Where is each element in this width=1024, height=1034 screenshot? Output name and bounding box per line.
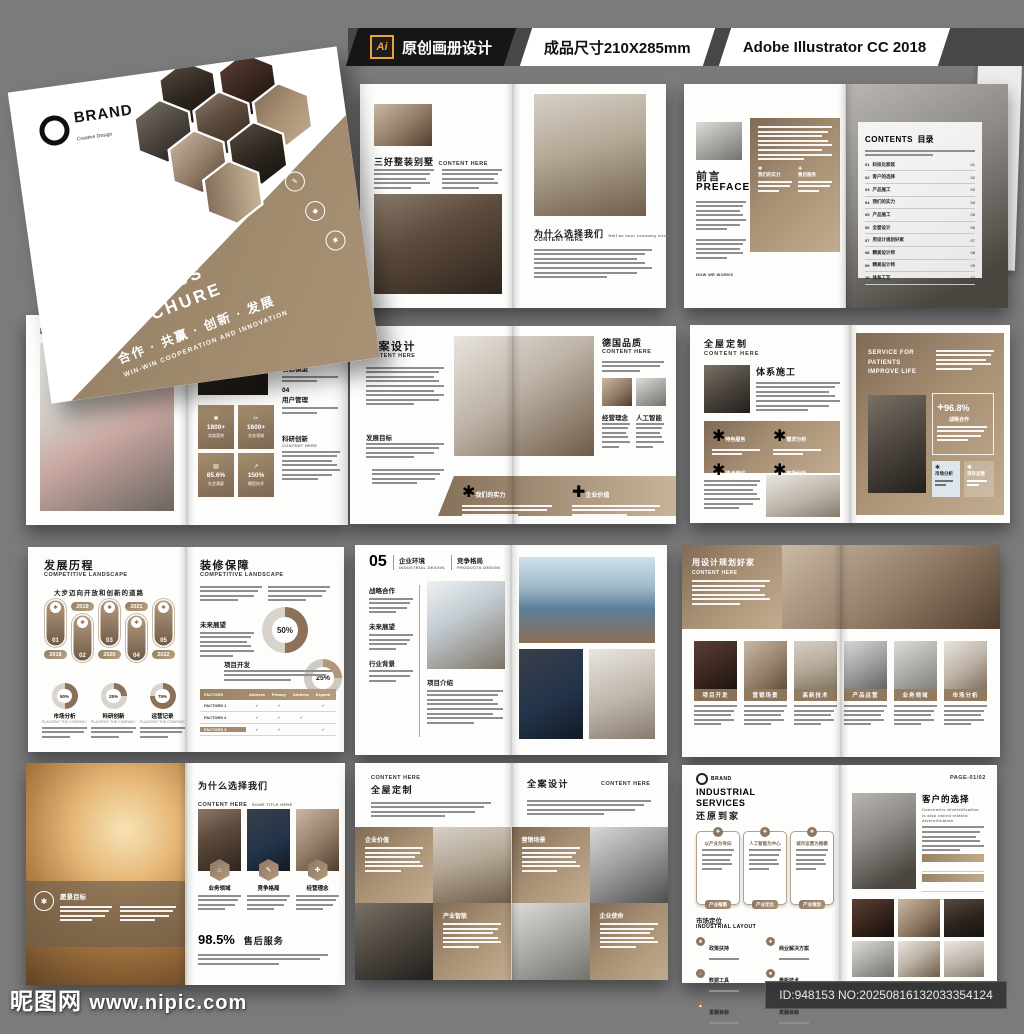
gear-icon: ✱ [935, 464, 957, 471]
text-placeholder-lines [282, 451, 340, 481]
timeline-step: 2019✱02 [69, 599, 96, 662]
section-subtitle: CONTENT HERE [282, 443, 340, 448]
card-photo: ✚ [296, 809, 339, 871]
photo-open-living [782, 545, 1000, 629]
donut-chart: 50% [52, 683, 78, 709]
block-label: 企业价值 [365, 835, 433, 844]
adobe-illustrator-icon: Ai [370, 35, 394, 59]
contents-item: 08精美设计师08 [865, 247, 975, 260]
preface-footer: HOW WE WORKS [696, 272, 736, 277]
text-placeholder-lines [140, 727, 185, 738]
donut-value: 50% [277, 626, 293, 635]
card-label: 业务领域 [198, 884, 241, 892]
table-row: FACTORS 3✓✓✓ [200, 724, 336, 736]
bubble-icon: ✚ [760, 827, 770, 837]
text-placeholder-lines [779, 958, 827, 960]
card-label: 项目开发 [694, 689, 737, 701]
text-placeholder-lines [936, 347, 994, 373]
bubble-icon: ✚ [807, 827, 817, 837]
feature-cards: ⌂业务领域✎竞争格局✚经营理念 [198, 809, 339, 913]
future-label: 未来展望 [200, 619, 226, 629]
text-placeholder-lines [758, 126, 832, 160]
stat-value: 96.8% [944, 403, 970, 413]
section-title: 体系施工 [756, 365, 796, 378]
photo-dining [512, 903, 590, 980]
service-brown-page: SERVICE FORPATIENTSIMPROVE LIFE +96.8% 战… [856, 333, 1004, 515]
preface-brown-panel: ✱我们的实力 ✚售后服务 [750, 118, 840, 252]
text-placeholder-lines [365, 847, 423, 872]
photo-hallway [433, 827, 511, 903]
text-placeholder-lines [709, 958, 757, 960]
timeline-capsule: ✱02 [72, 614, 93, 662]
text-placeholder-lines [704, 477, 760, 512]
feature-icon: ✱ [773, 428, 786, 445]
text-placeholder-lines [894, 705, 937, 725]
photo-bedroom [374, 194, 502, 294]
bullet-placeholder-lines [372, 466, 444, 487]
plus-icon: + [937, 400, 944, 414]
card-label: 市场分析 [944, 689, 987, 701]
stat-label: 战略合作 [949, 416, 989, 423]
page-number: PAGE-01/02 [950, 775, 986, 781]
box-label: 市场分析 [935, 471, 957, 477]
check-cell: ✓ [246, 703, 268, 708]
donut-label: 市场分析 [42, 712, 87, 720]
page-subtitle: CONTENT HERE [534, 237, 583, 243]
photo-blue-dining [519, 649, 583, 739]
photo-card: 项目开发 [694, 641, 737, 728]
text-placeholder-lines [600, 923, 659, 948]
card-label: 产品运营 [844, 689, 887, 701]
table-row: FACTORS 1✓✓✓ [200, 700, 336, 712]
section-label: 战略合作 [369, 585, 413, 595]
brown-block: 营销场景 [512, 827, 590, 903]
text-placeholder-lines [696, 236, 746, 262]
text-placeholder-lines [296, 895, 339, 911]
table-header-cell: FACTORS [200, 692, 246, 697]
card-photo: ⌂ [198, 809, 241, 871]
panel-col2-label: 售后服务 [798, 172, 832, 178]
donut-chart: 25% [101, 683, 127, 709]
spread-history-guarantee: 发展历程 COMPETITIVE LANDSCAPE 大步迈向开放和创新的道路 … [28, 547, 344, 752]
stat-value: 150% [248, 472, 265, 479]
text-placeholder-lines [282, 407, 338, 414]
text-placeholder-lines [937, 426, 987, 442]
photo-terrace [519, 557, 655, 643]
table-cell: FACTORS 1 [200, 703, 246, 708]
table-header-cell: Address [246, 692, 268, 697]
header-software-label: Adobe Illustrator CC 2018 [743, 39, 926, 56]
bullet-item: ✚商业解决方案 [766, 937, 836, 962]
contents-item: 09精美设计师09 [865, 260, 975, 273]
text-placeholder-lines [696, 198, 746, 233]
brand-logo-icon [696, 773, 708, 785]
check-cell: ✓ [312, 727, 334, 732]
sidebar-sections: 战略合作 未来展望 行业背景 [369, 585, 413, 684]
text-placeholder-lines [442, 166, 502, 192]
speech-bubble-card: ✚城市运营为楷模产业规划 [790, 831, 834, 905]
hexagon-icon: ✚ [308, 859, 328, 881]
banner-brown: 用设计规划好家 CONTENT HERE [682, 545, 782, 629]
table-cell: FACTORS 3 [200, 727, 246, 732]
header-segment-size: 成品尺寸210X285mm [520, 28, 715, 66]
text-placeholder-lines [572, 505, 660, 516]
table-row-brown [922, 854, 984, 862]
brochure-cover-mockup: BRANDCreative Design ✎ ◆ ✱ NEW BUSINESS … [8, 46, 380, 403]
timeline-step: ✱052022 [150, 599, 177, 662]
preface-title-en: PREFACE [696, 182, 750, 193]
bullet-icon: ✚ [766, 937, 775, 946]
operation-box: ✱ 项目运营 [964, 461, 994, 497]
photo-wine-wall [852, 899, 894, 937]
chapter-col-cn: 竞争格局 [457, 555, 500, 565]
bullet-icon: ⌂ [696, 969, 705, 978]
photo-room-small [602, 378, 632, 406]
donut-stat: 75%运营记录PLACERAT THE COMPANY. [140, 683, 185, 740]
text-placeholder-lines [369, 670, 413, 681]
stat-label: 售后服务 [244, 936, 284, 946]
donut-stats: 50%市场分析PLACERAT THE COMPANY.25%科研创新PLACE… [42, 683, 185, 740]
card-photo: 项目开发 [694, 641, 737, 701]
spread-villa: 三好整装别墅 CONTENT HERE 为什么选择我们 Half an hour… [360, 84, 666, 308]
bullet-item: ▲发展目标 [696, 1001, 762, 1026]
feature-panel: ✱特色服务 ✱需求分析 ✱技术培训 ✱市场分析 [704, 421, 840, 473]
card-label: 业务领域 [894, 689, 937, 701]
photo-card: 产品运营 [844, 641, 887, 728]
text-placeholder-lines [796, 849, 828, 869]
card-photo: ✎ [247, 809, 290, 871]
text-placeholder-lines [198, 895, 241, 911]
page-subtitle: CONTENT HERE [198, 802, 247, 808]
text-placeholder-lines [602, 420, 630, 450]
photo-study-room [374, 104, 432, 146]
timeline-year: 2022 [152, 650, 174, 659]
text-placeholder-lines [794, 705, 837, 725]
text-placeholder-lines [534, 246, 652, 281]
brand-name: BRAND [73, 102, 134, 127]
contents-item: 02客户的选择02 [865, 171, 975, 184]
stat-box: ✂1600+业务领域 [238, 405, 274, 449]
text-placeholder-lines [844, 705, 887, 725]
donut-label: 科研创新 [91, 712, 136, 720]
card-label: 竞争格局 [247, 884, 290, 892]
text-placeholder-lines [366, 440, 444, 461]
spread-custom-service: 全屋定制 CONTENT HERE 体系施工 ✱特色服务 ✱需求分析 ✱技术培训… [690, 325, 1010, 523]
text-placeholder-lines [922, 826, 984, 851]
photo-card: 业务领域 [894, 641, 937, 728]
hex-feature-card: ✚经营理念 [296, 809, 339, 913]
donut-sublabel: PLACERAT THE COMPANY. [91, 720, 136, 724]
feature-label: 技术培训 [725, 471, 745, 477]
page-title-cn: 还原到家 [696, 809, 740, 822]
contents-item: 01科技化家装01 [865, 159, 975, 172]
text-placeholder-lines [602, 358, 664, 374]
page-title-en: INDUSTRIAL SERVICES [696, 787, 780, 809]
bullet-item: ⌂数据工具 [696, 969, 762, 994]
text-placeholder-lines [744, 705, 787, 725]
site-url: www.nipic.com [89, 992, 247, 1014]
stat-icon: ↗ [253, 463, 258, 470]
divider [419, 585, 420, 737]
section-title-en: INDUSTRIAL LAYOUT [696, 924, 756, 930]
stat-value: 85.6% [207, 472, 225, 479]
table-row: FACTORS 2✓✓✓ [200, 712, 336, 724]
text-placeholder-lines [200, 583, 262, 604]
card-photo: 业务领域 [894, 641, 937, 701]
feature-label: 需求分析 [786, 437, 806, 443]
text-placeholder-lines [120, 903, 176, 924]
page-title: 全屋定制 [371, 783, 413, 796]
photo-entry-door [534, 94, 646, 216]
text-placeholder-lines [773, 449, 821, 456]
band-item-label: 企业价值 [585, 493, 609, 499]
value-icon: ✚ [572, 484, 585, 501]
bullet-label: 数据工具 [709, 978, 729, 984]
page-title: 全屋定制 [704, 337, 748, 350]
donut-sublabel: PLACERAT THE COMPANY. [140, 720, 185, 724]
chapter-col-en: PRODUCTS DESIGN [457, 565, 500, 570]
spread-plan-home: 用设计规划好家 CONTENT HERE 项目开发营销场景高新技术产品运营业务领… [682, 545, 1000, 757]
page-title-en: COMPETITIVE LANDSCAPE [200, 572, 284, 578]
block-label: 企业使命 [600, 911, 669, 920]
table-header-row: FACTORSAddressPrivacyAddressExpand [200, 689, 336, 700]
card-photo: 市场分析 [944, 641, 987, 701]
bullet-label: 发展目标 [779, 1010, 799, 1016]
text-placeholder-lines [42, 727, 87, 738]
photo-staircase [589, 649, 655, 739]
brand-name: BRAND [711, 776, 732, 782]
stat-value: 98.5% [198, 932, 235, 947]
card-label: 经营理念 [296, 884, 339, 892]
photo-white-bedroom [944, 941, 984, 977]
stats-grid: ✱1800+实践案例 ✂1600+业务领域 ▤85.6%社会满意 ↗150%模型… [198, 405, 274, 497]
stat-icon: ✂ [253, 415, 258, 422]
contents-item: 07用设计规划好家07 [865, 234, 975, 247]
bullet-label: 政策扶持 [709, 946, 729, 952]
spread-vision-why: ✱ 愿景目标 为什么选择我们 CONTENT HERE SOME TITLE H… [26, 763, 345, 985]
stat-label: 模型技术 [248, 481, 264, 487]
photo-sofa-light [766, 475, 840, 517]
header-design-label: 原创画册设计 [402, 37, 492, 58]
stat-value: 1800+ [207, 424, 225, 431]
text-placeholder-lines [200, 629, 254, 659]
text-placeholder-lines [712, 449, 760, 456]
box-label: 项目运营 [967, 471, 991, 477]
stat-box: ↗150%模型技术 [238, 453, 274, 497]
spread-services-choice: BRAND INDUSTRIAL SERVICES 还原到家 ✚以产业为导向产业… [682, 765, 997, 983]
page-note: Half an hour economy circle [608, 233, 670, 238]
text-placeholder-lines [944, 705, 987, 725]
photo-escalator [590, 827, 669, 903]
bullet-icon: ▲ [696, 1001, 705, 1010]
watermark-site: 昵图网 www.nipic.com [10, 982, 247, 1016]
section-title: 科研创新 [282, 433, 340, 443]
donut-label: 运营记录 [140, 712, 185, 720]
item-number: 04 [282, 387, 338, 394]
contents-item: 03产品施工03 [865, 184, 975, 197]
analysis-box: ✱ 市场分析 [932, 461, 960, 497]
text-placeholder-lines [366, 364, 444, 408]
bullet-column: ✱政策扶持⌂数据工具▲发展目标 [696, 937, 762, 1034]
page-title: 德国品质 [602, 336, 642, 349]
text-placeholder-lines [462, 505, 552, 516]
text-placeholder-lines [967, 480, 987, 487]
table-row [922, 864, 984, 872]
text-placeholder-lines [692, 580, 770, 605]
donut-stat: 25%科研创新PLACERAT THE COMPANY. [91, 683, 136, 740]
text-placeholder-lines [522, 847, 580, 872]
card-label: 营销场景 [744, 689, 787, 701]
text-placeholder-lines [758, 181, 792, 192]
photo-terminal [427, 581, 505, 669]
banner-subtitle: CONTENT HERE [692, 570, 772, 576]
photo-kitchen [704, 365, 750, 413]
bullet-icon: ✱ [696, 937, 705, 946]
feature-icon: ✱ [712, 428, 725, 445]
donut-chart-50: 50% [262, 607, 308, 653]
photo-stair-hall [696, 122, 742, 160]
vision-overlay-band: ✱ 愿景目标 [26, 881, 185, 947]
contents-item: 10体系工艺10 [865, 272, 975, 285]
timeline-capsule: ✱01 [45, 599, 66, 647]
text-placeholder-lines [268, 583, 330, 604]
bubble-icon: ✚ [713, 827, 723, 837]
hexagon-icon: ✎ [259, 859, 279, 881]
id-text: ID:948153 NO:20250816132033354124 [779, 988, 993, 1002]
check-cell: ✓ [268, 727, 290, 732]
contents-title-en: CONTENTS [865, 135, 913, 144]
stat-box: ✱1800+实践案例 [198, 405, 234, 449]
text-placeholder-lines [282, 376, 338, 383]
brown-block: 企业价值 [355, 827, 433, 903]
cover-logo: BRANDCreative Design [37, 102, 136, 151]
timeline-year: 2018 [44, 650, 66, 659]
text-placeholder-lines [443, 923, 501, 948]
bubble-title: 以产业为导向 [700, 841, 736, 847]
timeline-year: 2020 [98, 650, 120, 659]
text-placeholder-lines [756, 379, 840, 414]
timeline-step: ✱012018 [42, 599, 69, 662]
spread-quadrants: CONTENT HERE 全屋定制 企业价值 产业智联 全案设计 CONTENT… [355, 763, 668, 980]
hex-feature-card: ⌂业务领域 [198, 809, 241, 913]
spread-design-quality: 全案设计 CONTENT HERE 发展目标 德国品质 CONTENT HERE… [350, 326, 676, 524]
text-placeholder-lines [694, 705, 737, 725]
photo-card: 市场分析 [944, 641, 987, 728]
card-photo: 产品运营 [844, 641, 887, 701]
panel-col1-label: 我们的实力 [758, 172, 792, 178]
text-placeholder-lines [198, 951, 328, 967]
tagline: SERVICE FOR [868, 350, 914, 356]
donut-chart: 75% [150, 683, 176, 709]
text-placeholder-lines [247, 895, 290, 911]
photo-office [898, 941, 940, 977]
hexagon-icon: ⌂ [210, 859, 230, 881]
timeline-capsule: ✱04 [126, 614, 147, 662]
mini-table [922, 854, 984, 900]
bubble-tag: 产业楷模 [705, 900, 731, 909]
chapter-col-cn: 企业环境 [399, 555, 445, 565]
block-label: 营销场景 [522, 835, 590, 844]
table-header-cell: Privacy [268, 692, 290, 697]
check-cell: ✓ [268, 715, 290, 720]
bubble-title: 人工智能为中心 [747, 841, 783, 847]
site-name: 昵图网 [10, 988, 82, 1014]
table-row [922, 884, 984, 892]
vision-icon: ✱ [34, 891, 54, 911]
text-placeholder-lines [636, 420, 664, 450]
photo-living-room [852, 793, 916, 889]
stat-label: 业务领域 [248, 433, 264, 439]
page-subtitle2: SOME TITLE HERE [252, 802, 293, 807]
eyebrow: CONTENT HERE [601, 781, 650, 787]
section-label: 行业背景 [369, 658, 413, 668]
stat-icon: ✱ [213, 415, 218, 422]
photo-desk [852, 941, 894, 977]
speech-bubble-card: ✚人工智能为中心产业定位 [743, 831, 787, 905]
watermark-id: ID:948153 NO:20250816132033354124 [765, 981, 1007, 1009]
section-subtitle: Concentric diversification is also calle… [922, 807, 984, 824]
text-placeholder-lines [369, 634, 413, 650]
header-bar: Ai 原创画册设计 成品尺寸210X285mm Adobe Illustrato… [348, 28, 1024, 66]
bubble-tag: 产业规划 [799, 900, 825, 909]
text-placeholder-lines [527, 797, 651, 818]
photo-hall-small [636, 378, 666, 406]
banner-title: 用设计规划好家 [692, 557, 772, 568]
text-placeholder-lines [798, 181, 832, 192]
block-label: 产业智联 [443, 911, 511, 920]
contents-item: 06全屋设计06 [865, 222, 975, 235]
bubble-title: 城市运营为楷模 [794, 841, 830, 847]
table-header-cell: Address [290, 692, 312, 697]
brand-logo-icon [38, 114, 72, 148]
tagline: PATIENTS [868, 360, 901, 366]
photo-cards-row: 项目开发营销场景高新技术产品运营业务领域市场分析 [694, 641, 987, 728]
header-segment-title: Ai 原创画册设计 [346, 28, 516, 66]
check-cell: ✓ [246, 715, 268, 720]
stat-icon: ▤ [213, 463, 219, 470]
header-size-label: 成品尺寸210X285mm [544, 37, 691, 58]
contents-item: 04我们的实力04 [865, 197, 975, 210]
bullet-icon: ✱ [766, 969, 775, 978]
page-title: 发展历程 [44, 557, 94, 573]
check-cell: ✓ [246, 727, 268, 732]
brand-tagline: Creative Design [77, 132, 113, 143]
page-title-en: COMPETITIVE LANDSCAPE [44, 572, 128, 578]
text-placeholder-lines [709, 990, 757, 992]
contents-item: 05产品施工05 [865, 209, 975, 222]
band-item-label: 我们的实力 [475, 493, 505, 499]
feature-label: 特色服务 [725, 437, 745, 443]
chapter-col-en: INDUSTRIAL DESIGN [399, 565, 445, 570]
brown-band: ✱我们的实力 ✚企业价值 [438, 476, 676, 516]
overlay-label: 愿景目标 [60, 891, 86, 901]
choice-column: 客户的选择 Concentric diversification is also… [922, 793, 984, 900]
spread-environment: 05 企业环境INDUSTRIAL DESIGN 竞争格局PRODUCTS DE… [355, 545, 667, 755]
table-row-brown [922, 874, 984, 882]
factors-table: FACTORSAddressPrivacyAddressExpand FACTO… [200, 689, 336, 736]
card-photo: 营销场景 [744, 641, 787, 701]
timeline-capsule: ✱05 [153, 599, 174, 647]
photo-card: 营销场景 [744, 641, 787, 728]
text-placeholder-lines [865, 150, 975, 157]
strength-icon: ✱ [462, 484, 475, 501]
page-title: 全案设计 [527, 777, 569, 790]
check-cell: ✓ [290, 715, 312, 720]
check-cell: ✓ [268, 703, 290, 708]
text-placeholder-lines [369, 598, 413, 614]
tagline: IMPROVE LIFE [868, 369, 916, 375]
stat-label: 社会满意 [208, 481, 224, 487]
